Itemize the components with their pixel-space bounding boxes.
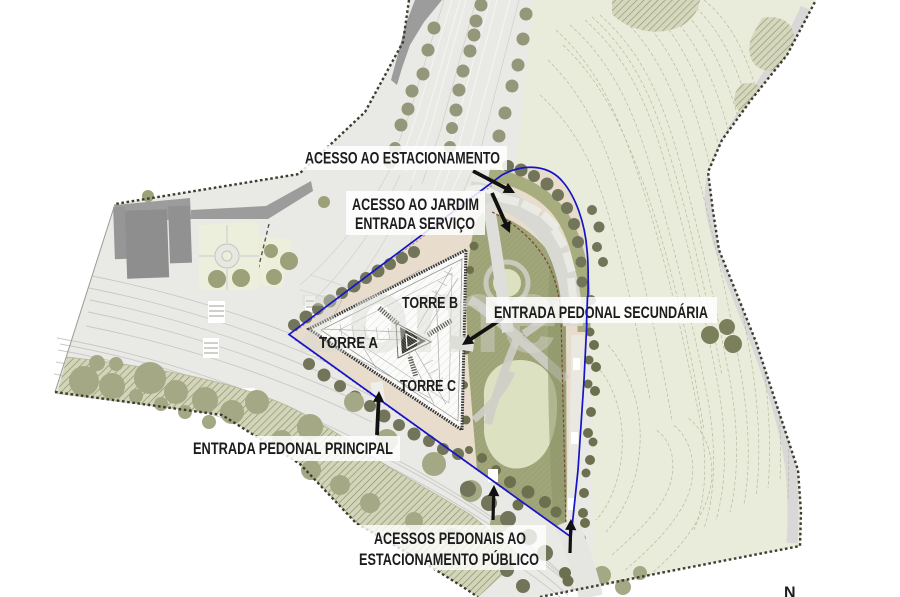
svg-text:ACESSO AO JARDIM: ACESSO AO JARDIM	[352, 195, 479, 214]
svg-text:ESTACIONAMENTO PÚBLICO: ESTACIONAMENTO PÚBLICO	[359, 550, 539, 569]
svg-text:ACESSOS PEDONAIS AO: ACESSOS PEDONAIS AO	[374, 529, 526, 548]
svg-text:ENTRADA PEDONAL SECUNDÁRIA: ENTRADA PEDONAL SECUNDÁRIA	[494, 303, 708, 322]
svg-text:TORRE C: TORRE C	[400, 378, 456, 395]
svg-text:ENTRADA PEDONAL PRINCIPAL: ENTRADA PEDONAL PRINCIPAL	[193, 439, 393, 458]
svg-text:N: N	[784, 585, 796, 597]
svg-text:ACESSO AO ESTACIONAMENTO: ACESSO AO ESTACIONAMENTO	[305, 149, 500, 168]
svg-text:ENTRADA SERVIÇO: ENTRADA SERVIÇO	[355, 214, 475, 233]
svg-text:TORRE B: TORRE B	[402, 295, 458, 312]
svg-text:TORRE A: TORRE A	[319, 335, 378, 352]
